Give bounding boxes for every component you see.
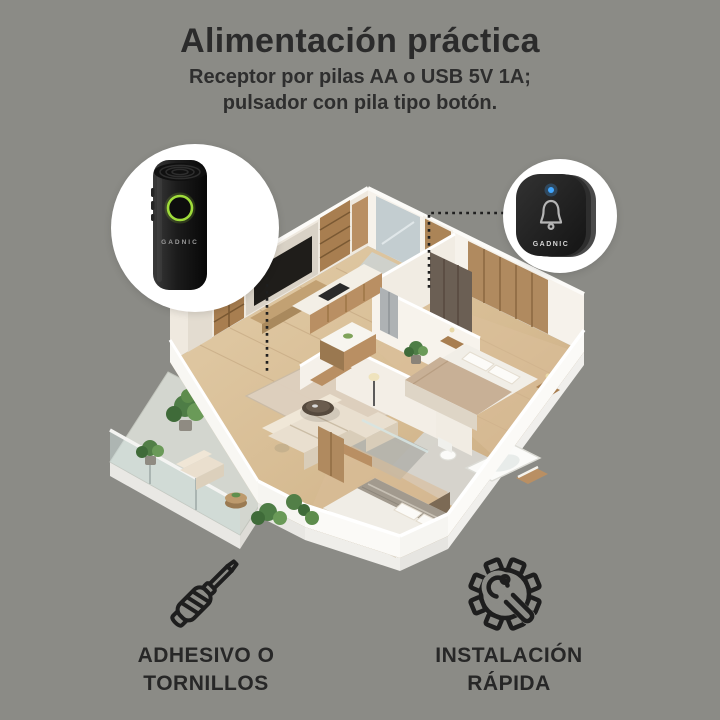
feature-label-line-2: TORNILLOS [86,670,326,698]
receiver-device-illustration: GADNIC [111,144,279,312]
doorbell-callout-circle: GADNIC [503,159,617,273]
receiver-brand-label: GADNIC [161,239,199,246]
gear-wrench-icon [454,552,564,642]
side-buttons [151,188,155,221]
screwdriver-icon [151,550,261,642]
doorbell-device-illustration: GADNIC [503,159,617,273]
doorbell-led [545,184,558,197]
feature-label-line-1: INSTALACIÓN [389,642,629,670]
feature-label-line-2: RÁPIDA [389,670,629,698]
receiver-callout-circle: GADNIC [111,144,279,312]
feature-label-line-1: ADHESIVO O [86,642,326,670]
feature-fast-install: INSTALACIÓN RÁPIDA [389,552,629,698]
speaker-grille-icon [154,163,206,181]
page-background: { "header": { "title": "Alimentación prá… [0,0,720,720]
feature-adhesive-or-screws: ADHESIVO O TORNILLOS [86,550,326,698]
doorbell-brand-label: GADNIC [533,241,570,248]
led-ring [168,196,192,220]
